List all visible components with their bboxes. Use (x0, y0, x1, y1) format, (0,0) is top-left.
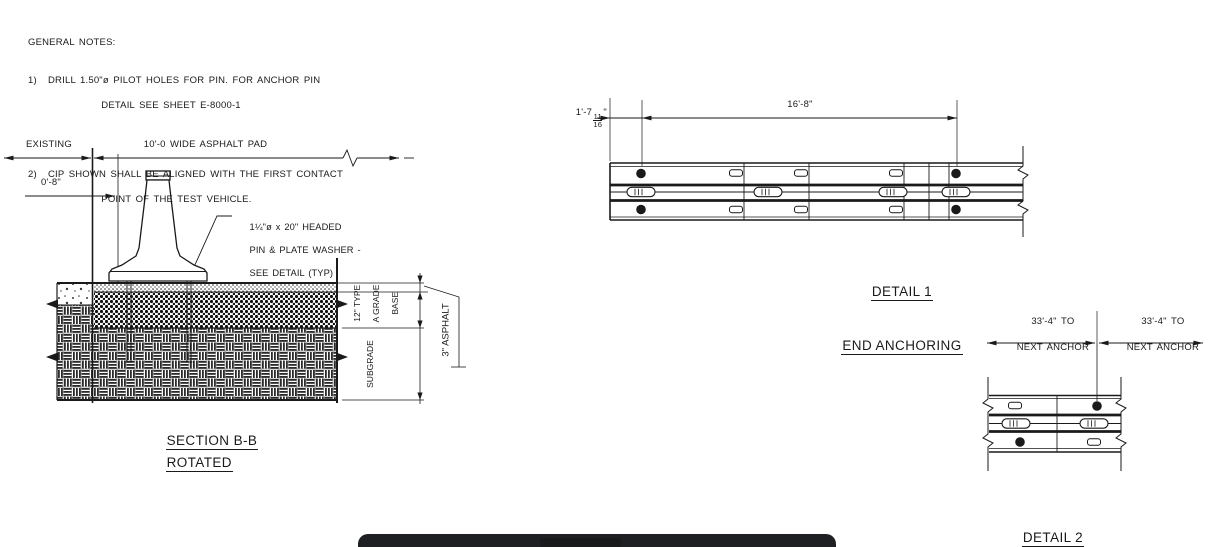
detail2-title-block: DETAIL 2 INTERMEDIATE ANCHORING (953, 494, 1153, 547)
detail1-title: DETAIL 1 (871, 284, 933, 301)
section-bb-ground-fills (57, 283, 337, 400)
detail1-subtitle: END ANCHORING (841, 338, 962, 355)
layer-label-asphalt: 3" ASPHALT (441, 303, 452, 356)
pin-note-line3: SEE DETAIL (TYP) (250, 268, 334, 278)
detail1-dim-short: 1'-71116" (558, 94, 607, 140)
detail1-lines (597, 98, 1028, 237)
dim-asphalt-pad-label: 10'-0 WIDE ASPHALT PAD (118, 139, 293, 152)
toolbar-segment (540, 538, 621, 547)
existing-asphalt-hatch (57, 283, 94, 305)
section-subtitle: ROTATED (149, 440, 233, 487)
note-2-line2: POINT OF THE TEST VEHICLE. (101, 194, 251, 205)
detail2-dim-right: 33'-4" TO NEXT ANCHOR (1104, 302, 1204, 367)
layer-label-subgrade: SUBGRADE (365, 340, 375, 388)
general-notes: GENERAL NOTES: 1) DRILL 1.50"ø PILOT HOL… (28, 12, 343, 232)
note-1-line1: DRILL 1.50"ø PILOT HOLES FOR PIN. FOR AN… (48, 75, 320, 86)
pin-note-line1: 1¼"ø x 20" HEADED (250, 222, 342, 232)
note-1-line2: DETAIL SEE SHEET E-8000-1 (101, 100, 241, 111)
general-notes-title: GENERAL NOTES: (28, 37, 343, 50)
pin-note-line2: PIN & PLATE WASHER - (250, 245, 361, 255)
detail1-title-block: DETAIL 1 END ANCHORING (827, 248, 977, 391)
base-layer-hatch (94, 292, 337, 328)
layer-label-base: 12" TYPE A GRADE BASE (343, 285, 410, 332)
note-2: 2) CIP SHOWN SHALL BE ALIGNED WITH THE F… (28, 169, 343, 207)
pin-note: 1¼"ø x 20" HEADED PIN & PLATE WASHER - S… (234, 210, 361, 291)
detail2-title: DETAIL 2 (1022, 530, 1084, 547)
note-1: 1) DRILL 1.50"ø PILOT HOLES FOR PIN. FOR… (28, 75, 343, 113)
dim-existing-label: EXISTING (20, 139, 78, 152)
drawing-sheet: GENERAL NOTES: 1) DRILL 1.50"ø PILOT HOL… (0, 0, 1212, 547)
viewer-toolbar[interactable] (358, 534, 836, 547)
detail1-dim-long: 16'-8" (765, 99, 835, 112)
note-1-number: 1) (28, 75, 48, 113)
detail2-dim-left: 33'-4" TO NEXT ANCHOR (994, 302, 1094, 367)
note-2-line1: CIP SHOWN SHALL BE ALIGNED WITH THE FIRS… (48, 169, 343, 180)
dim-offset-label: 0'-8" (30, 177, 72, 190)
